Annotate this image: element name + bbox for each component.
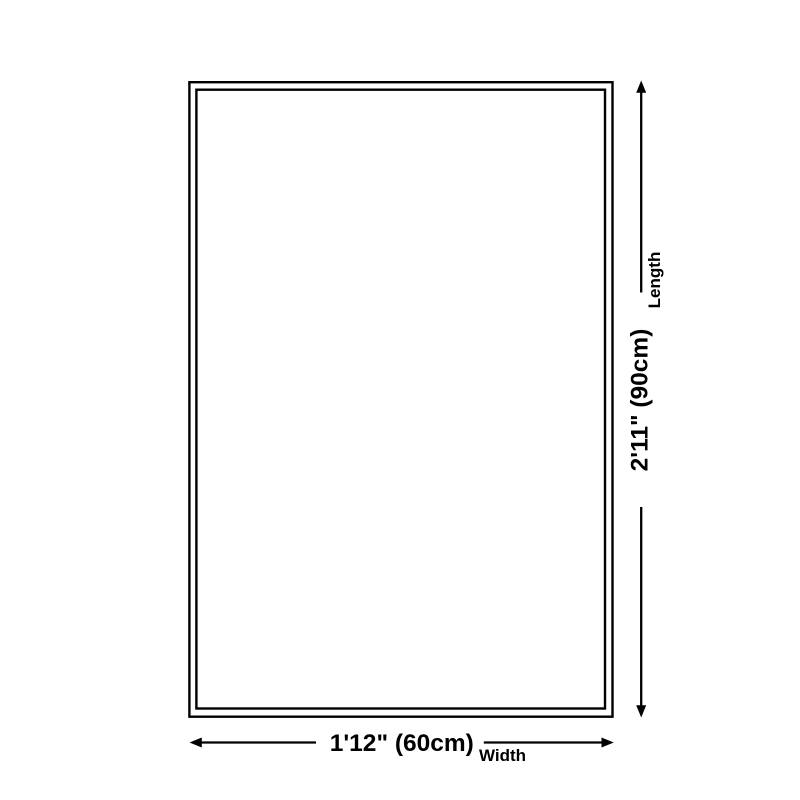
svg-text:1'12" (60cm): 1'12" (60cm) [330,730,474,757]
svg-text:2'11" (90cm): 2'11" (90cm) [627,329,654,472]
svg-text:Length: Length [645,252,664,309]
svg-text:Width: Width [479,746,526,765]
